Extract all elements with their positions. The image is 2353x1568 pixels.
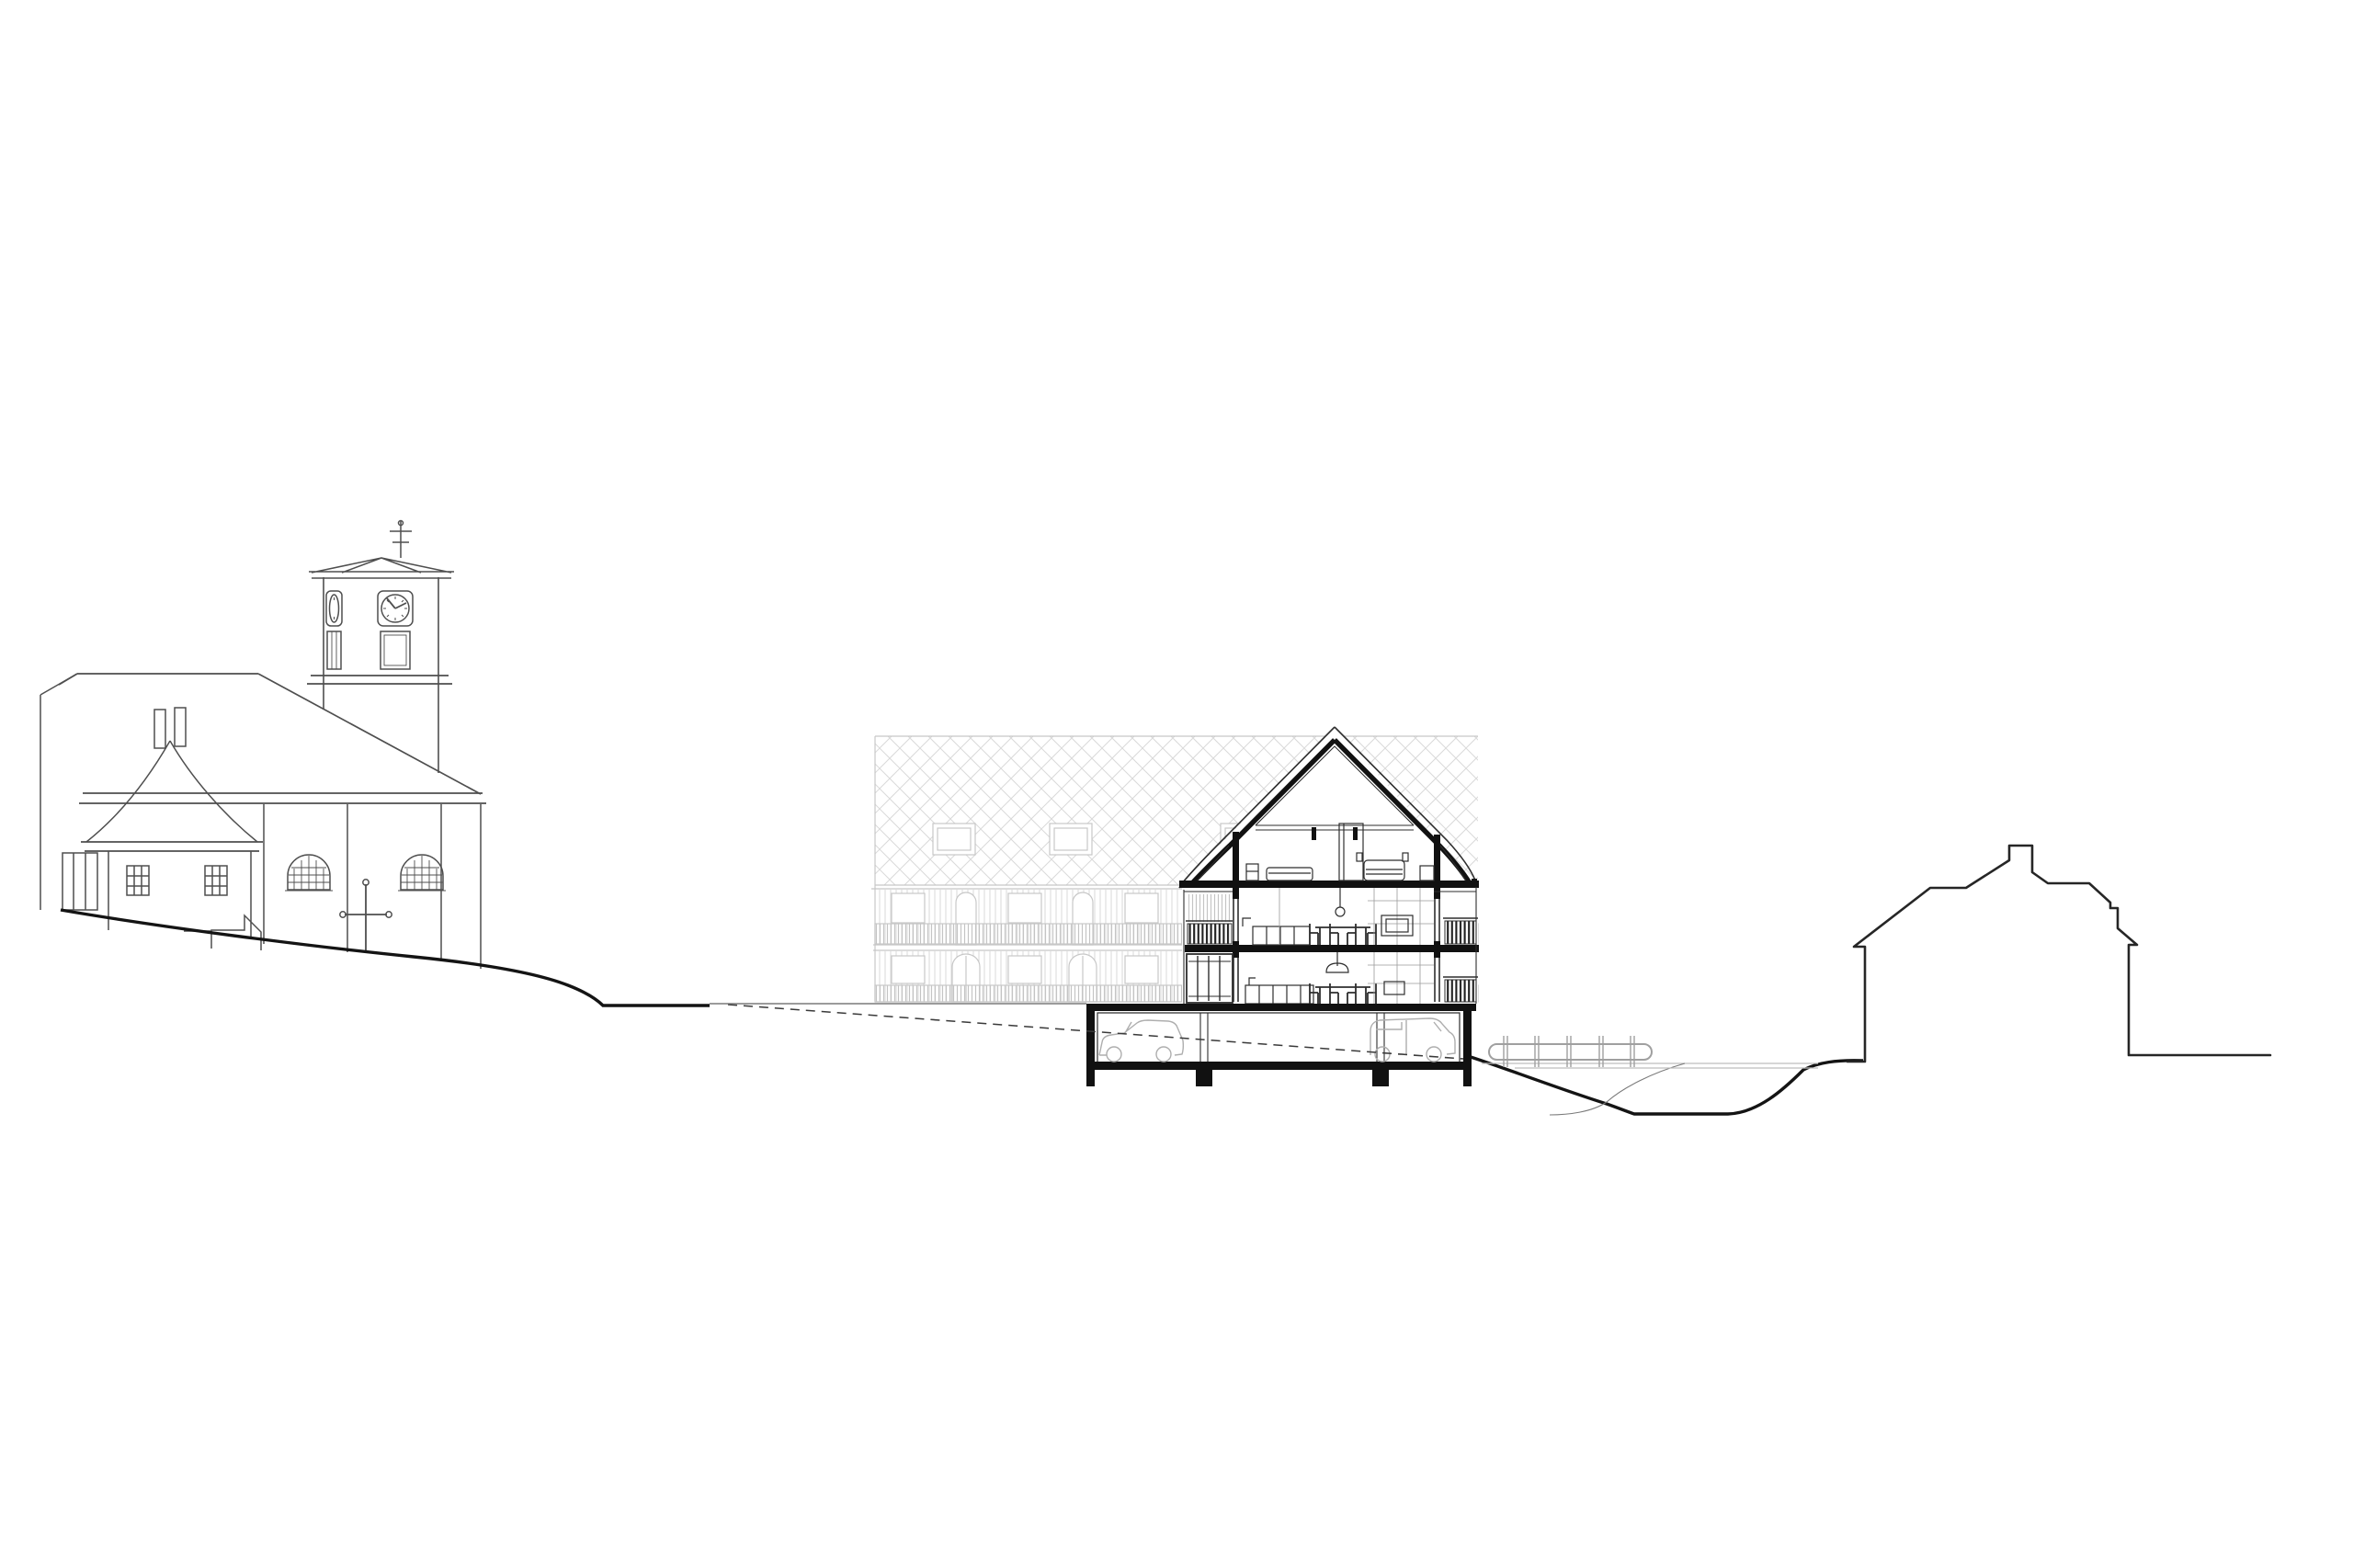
side-chapel	[81, 708, 263, 950]
balcony-railing-right-lower	[1445, 980, 1476, 1002]
weathervane	[390, 520, 412, 558]
church-elevation	[40, 520, 486, 969]
gutter-left	[1179, 881, 1185, 888]
garage-top-slab	[1086, 1004, 1476, 1011]
balcony-railing-right-upper	[1445, 921, 1476, 944]
garage-left-wall	[1086, 1004, 1095, 1086]
garage-floor-slab	[1086, 1062, 1472, 1070]
chapel-chimney	[175, 708, 186, 746]
left-balcony-backdrop-slats	[1188, 894, 1231, 922]
bridge-posts	[1504, 1036, 1634, 1067]
ground-line-left	[61, 910, 710, 1006]
church-nave	[59, 674, 486, 969]
belfry-louver	[327, 631, 410, 669]
garage-footing	[1196, 1070, 1212, 1086]
tower-clock	[326, 591, 413, 626]
church-tower	[307, 520, 454, 773]
roof-post-stub	[1353, 827, 1358, 840]
garage-right-wall	[1463, 1004, 1472, 1086]
chapel-chimney	[154, 710, 165, 748]
right-house-silhouette	[1847, 846, 2270, 1062]
roof-post-stub	[1312, 827, 1316, 840]
church-left-annex	[40, 674, 97, 910]
chapel-window	[127, 866, 227, 895]
tower-roof	[309, 558, 454, 578]
balcony-railing-left-upper	[1188, 924, 1232, 944]
ground-line-swale	[1471, 1057, 1863, 1114]
garage-footing	[1372, 1070, 1389, 1086]
drawing-canvas	[0, 0, 2353, 1568]
